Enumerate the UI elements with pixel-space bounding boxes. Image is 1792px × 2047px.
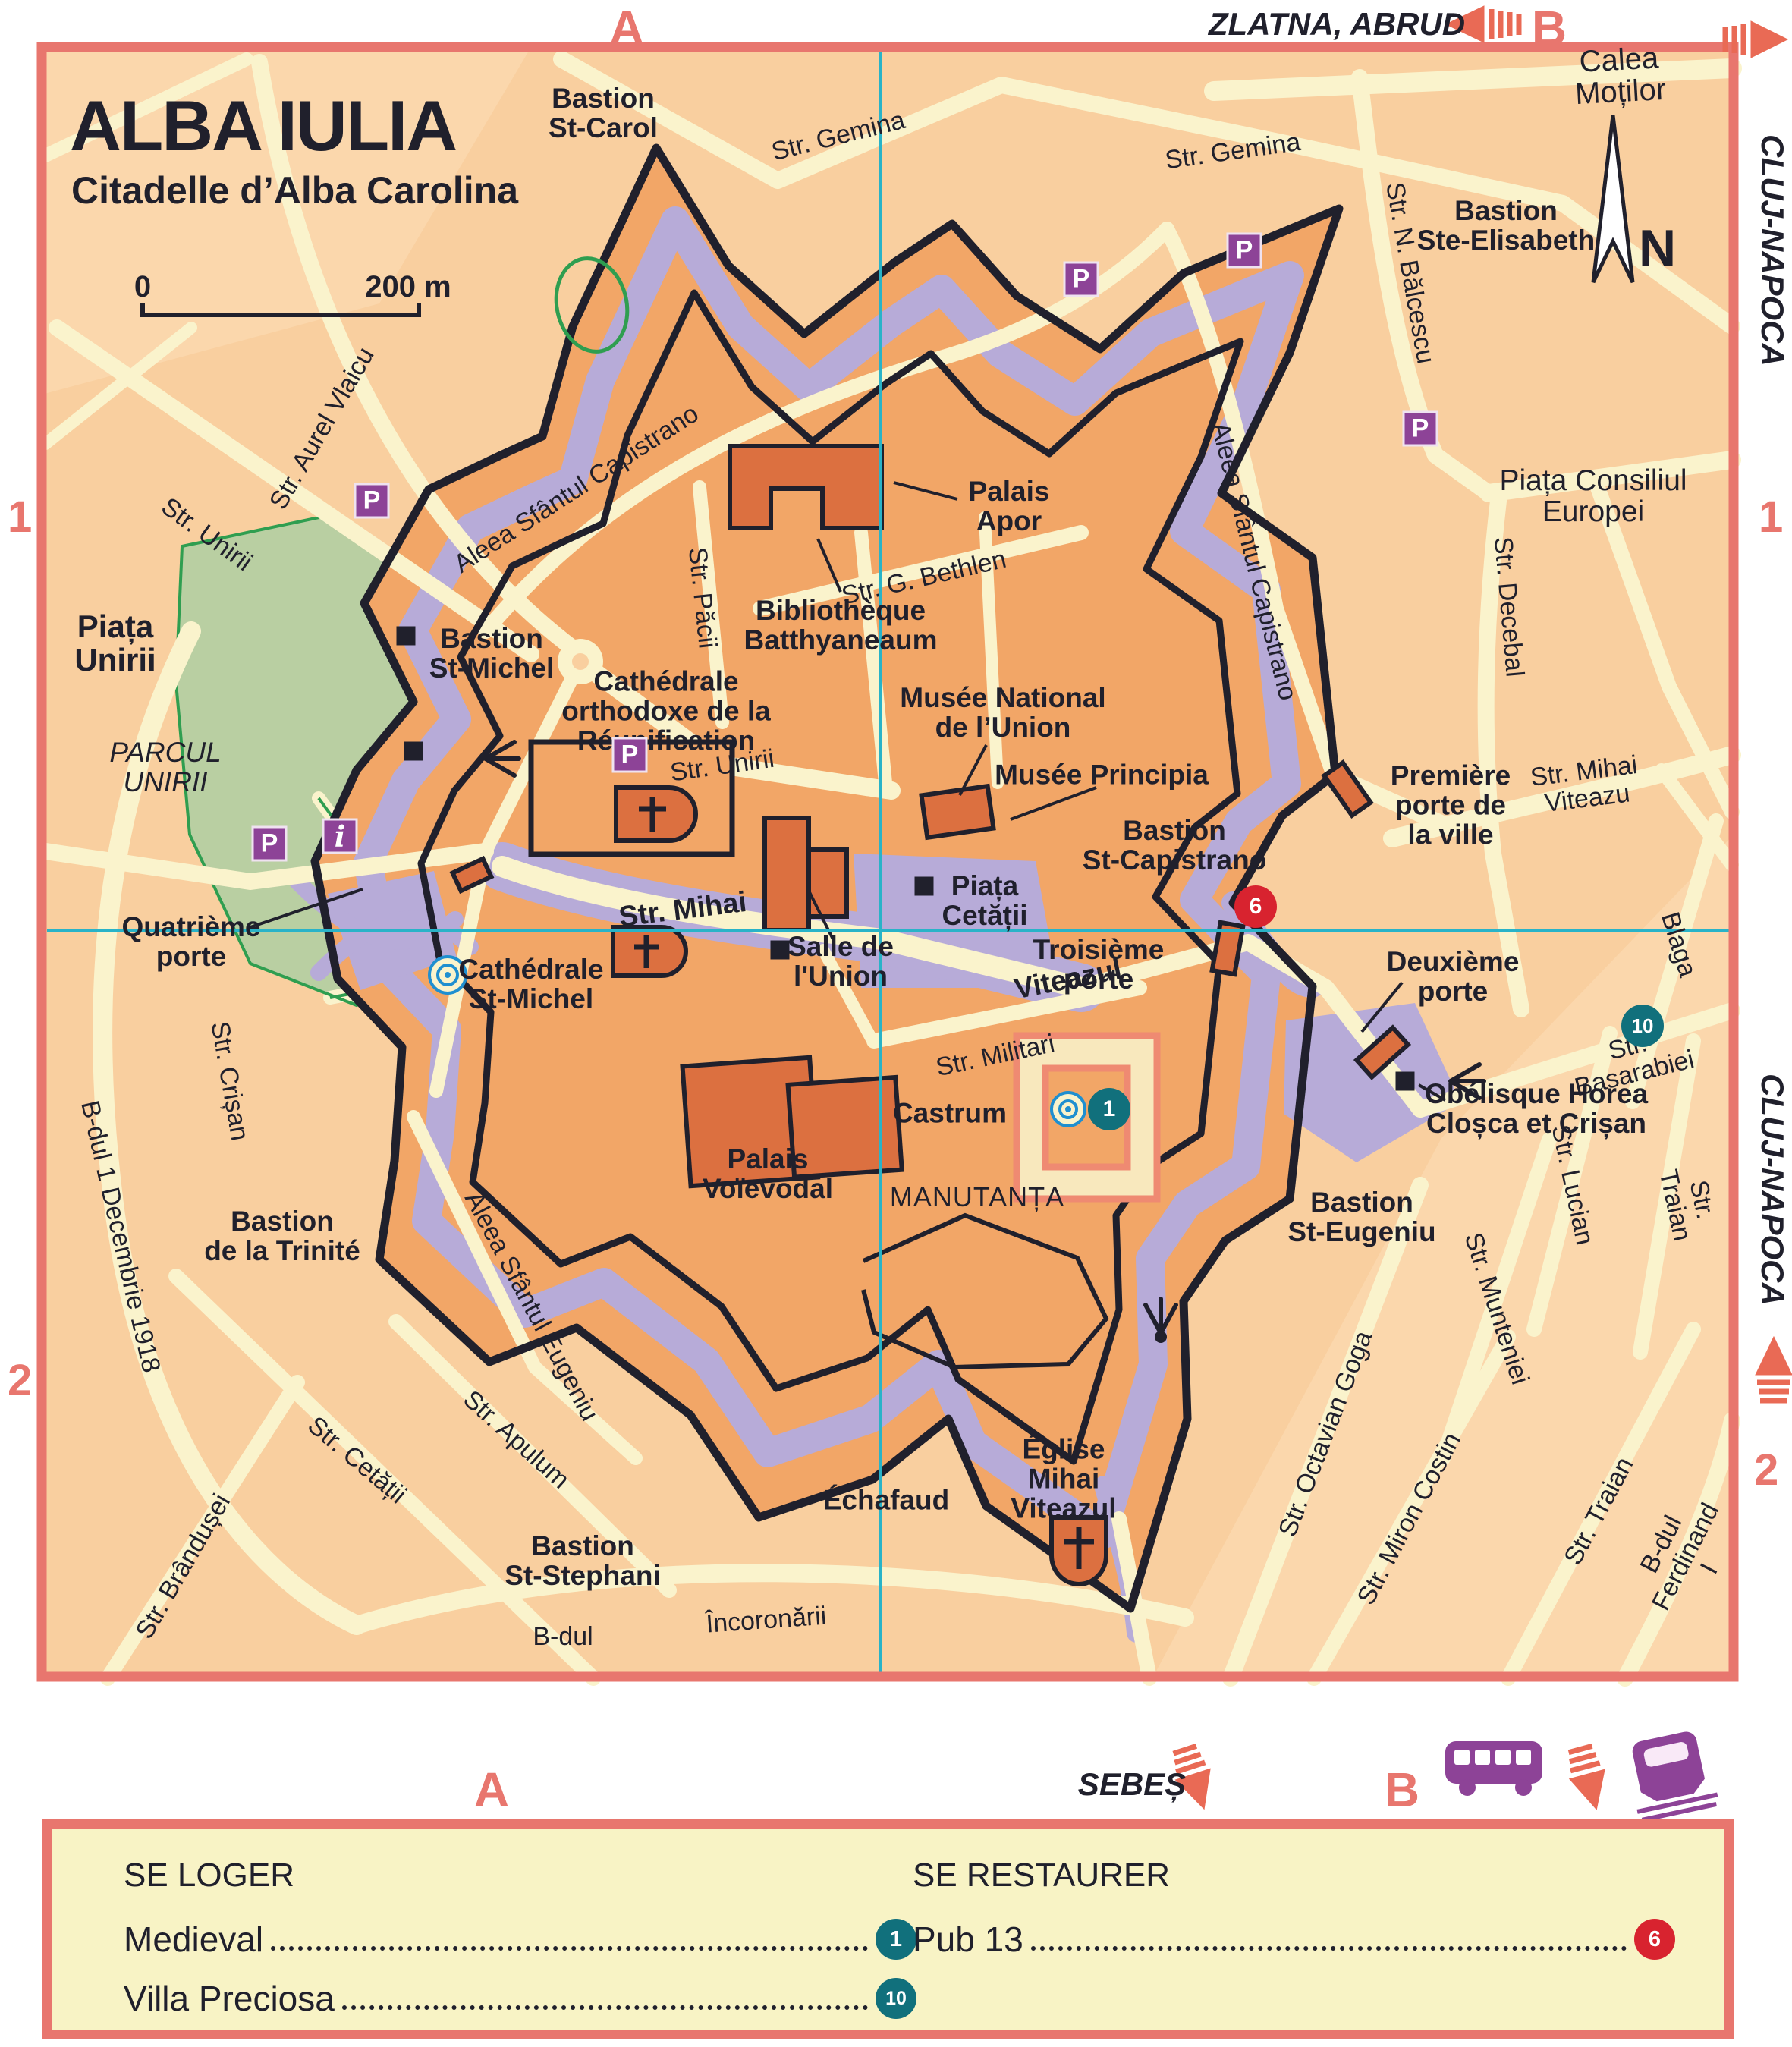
poi-marker-10: 10	[1621, 1005, 1664, 1047]
legend-row: Villa Preciosa10	[124, 1973, 916, 2019]
page: ALBA IULIA Citadelle d’Alba Carolina 0 2…	[0, 0, 1792, 2047]
legend-row: Medieval1	[124, 1914, 916, 1960]
legend-row: Pub 136	[913, 1914, 1675, 1960]
legend-dotted-leader	[1031, 1946, 1627, 1951]
legend-marker-6: 6	[1634, 1919, 1675, 1960]
poi-marker-1: 1	[1088, 1088, 1130, 1130]
poi-marker-6: 6	[1234, 885, 1277, 928]
parking-icon: P	[1227, 233, 1262, 269]
monument-square-icon	[1396, 1072, 1415, 1091]
legend-dining-header: SE RESTAURER	[913, 1857, 1675, 1894]
legend-panel: SE LOGER Medieval1Villa Preciosa10 SE RE…	[42, 1819, 1734, 2039]
legend-dining-column: SE RESTAURER Pub 136	[913, 1857, 1675, 1973]
monument-square-icon	[404, 742, 423, 761]
monument-square-icon	[771, 941, 790, 960]
legend-marker-10: 10	[876, 1978, 916, 2019]
legend-lodging-header: SE LOGER	[124, 1857, 916, 1894]
parking-icon: P	[354, 483, 390, 519]
map-icons-layer: PPPPPPi1106	[0, 0, 1792, 2047]
parking-icon: P	[1403, 411, 1438, 447]
legend-item-name: Medieval	[124, 1919, 271, 1960]
legend-dotted-leader	[342, 2005, 868, 2010]
monument-square-icon	[397, 627, 416, 646]
parking-icon: P	[1064, 262, 1099, 297]
legend-item-name: Pub 13	[913, 1919, 1031, 1960]
legend-marker-1: 1	[876, 1919, 916, 1960]
legend-item-name: Villa Preciosa	[124, 1978, 342, 2019]
parking-icon: P	[612, 737, 648, 773]
monument-square-icon	[915, 877, 934, 896]
info-icon: i	[322, 819, 358, 854]
parking-icon: P	[252, 826, 288, 862]
legend-lodging-column: SE LOGER Medieval1Villa Preciosa10	[124, 1857, 916, 2033]
legend-dotted-leader	[271, 1946, 868, 1951]
